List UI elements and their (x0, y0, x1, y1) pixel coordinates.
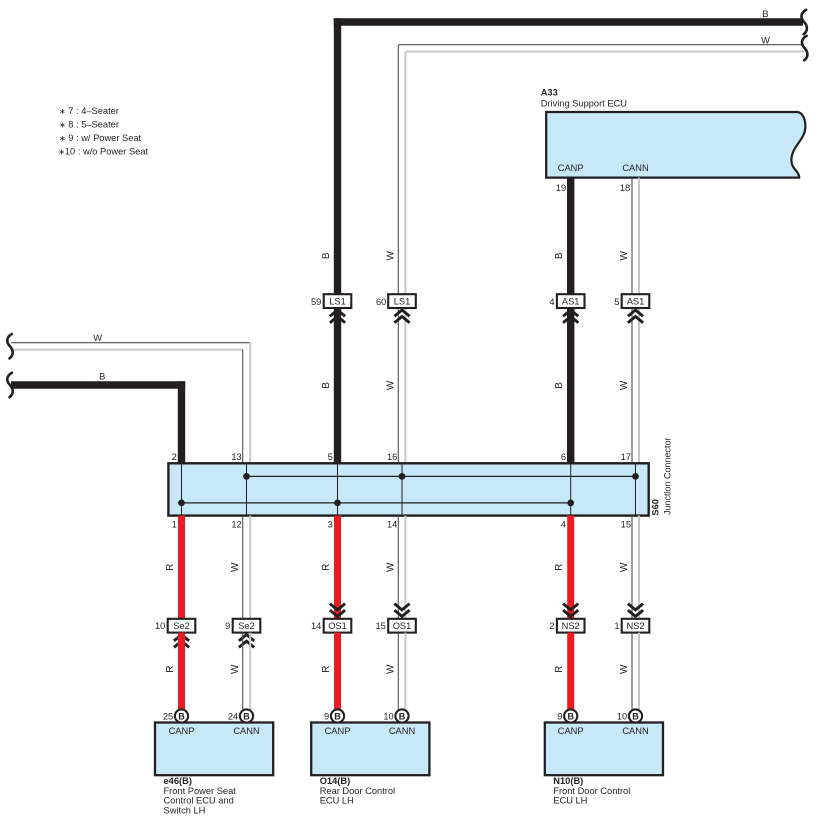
svg-text:3: 3 (328, 519, 333, 529)
svg-text:OS1: OS1 (393, 621, 412, 631)
svg-text:W: W (619, 562, 630, 572)
svg-text:10: 10 (383, 711, 393, 721)
svg-text:NS2: NS2 (562, 621, 580, 631)
svg-text:B: B (567, 711, 574, 721)
svg-text:CANP: CANP (558, 163, 584, 173)
svg-text:25: 25 (163, 711, 173, 721)
svg-text:Front Power Seat: Front Power Seat (164, 786, 237, 796)
svg-text:2: 2 (549, 621, 554, 631)
svg-text:ECU LH: ECU LH (320, 796, 354, 806)
svg-text:W: W (619, 251, 630, 261)
svg-text:Se2: Se2 (173, 621, 190, 631)
svg-text:W: W (619, 664, 630, 674)
svg-text:18: 18 (620, 183, 630, 193)
svg-text:59: 59 (311, 297, 321, 307)
svg-text:CANN: CANN (622, 163, 648, 173)
svg-text:e46(B): e46(B) (164, 776, 192, 786)
svg-text:16: 16 (387, 452, 397, 462)
svg-text:O14(B): O14(B) (320, 776, 350, 786)
svg-text:2: 2 (172, 452, 177, 462)
svg-text:10: 10 (155, 621, 165, 631)
svg-text:W: W (385, 562, 396, 572)
svg-text:Driving Support ECU: Driving Support ECU (541, 99, 627, 109)
svg-text:4: 4 (549, 297, 554, 307)
svg-text:∗ 7 : 4–Seater: ∗ 7 : 4–Seater (59, 106, 119, 116)
svg-text:A33: A33 (541, 88, 558, 98)
svg-text:W: W (385, 251, 396, 261)
svg-text:W: W (93, 333, 102, 343)
svg-text:CANP: CANP (169, 726, 195, 736)
svg-text:CANP: CANP (325, 726, 351, 736)
svg-text:15: 15 (375, 621, 385, 631)
svg-text:R: R (321, 564, 332, 571)
svg-text:14: 14 (387, 519, 397, 529)
svg-text:5: 5 (328, 452, 333, 462)
svg-text:R: R (321, 666, 332, 673)
svg-text:R: R (554, 564, 565, 571)
svg-text:W: W (230, 562, 241, 572)
svg-text:W: W (230, 664, 241, 674)
svg-text:LS1: LS1 (329, 297, 346, 307)
svg-text:Switch LH: Switch LH (164, 805, 206, 815)
svg-text:CANN: CANN (233, 726, 259, 736)
svg-text:B: B (399, 711, 406, 721)
svg-text:W: W (761, 35, 770, 45)
svg-text:∗ 9 : w/ Power Seat: ∗ 9 : w/ Power Seat (59, 133, 142, 143)
svg-text:Se2: Se2 (238, 621, 255, 631)
svg-text:∗10 : w/o Power Seat: ∗10 : w/o Power Seat (58, 146, 148, 156)
svg-text:9: 9 (225, 621, 230, 631)
svg-text:60: 60 (376, 297, 386, 307)
svg-text:B: B (554, 252, 565, 259)
svg-text:S60: S60 (650, 499, 660, 516)
svg-text:CANP: CANP (558, 726, 584, 736)
svg-text:9: 9 (324, 711, 329, 721)
svg-text:AS1: AS1 (562, 297, 580, 307)
svg-text:NS2: NS2 (626, 621, 644, 631)
svg-text:R: R (554, 666, 565, 673)
svg-text:B: B (334, 711, 341, 721)
svg-text:LS1: LS1 (394, 297, 411, 307)
svg-text:1: 1 (172, 519, 177, 529)
svg-text:B: B (178, 711, 185, 721)
svg-text:4: 4 (561, 519, 566, 529)
svg-text:∗ 8 : 5–Seater: ∗ 8 : 5–Seater (59, 119, 119, 129)
svg-text:10: 10 (617, 711, 627, 721)
svg-text:12: 12 (231, 519, 241, 529)
svg-text:AS1: AS1 (627, 297, 645, 307)
svg-text:5: 5 (614, 297, 619, 307)
svg-text:B: B (632, 711, 639, 721)
svg-text:Control ECU and: Control ECU and (164, 796, 234, 806)
svg-text:19: 19 (556, 183, 566, 193)
svg-text:R: R (165, 564, 176, 571)
svg-text:B: B (99, 372, 105, 382)
svg-text:Rear Door Control: Rear Door Control (320, 786, 395, 796)
svg-text:B: B (554, 382, 565, 389)
svg-text:B: B (321, 382, 332, 389)
svg-text:ECU LH: ECU LH (553, 796, 587, 806)
svg-text:Junction Connector: Junction Connector (663, 437, 673, 515)
svg-text:OS1: OS1 (328, 621, 347, 631)
svg-text:N10(B): N10(B) (553, 776, 583, 786)
svg-text:W: W (385, 380, 396, 390)
svg-text:6: 6 (561, 452, 566, 462)
svg-text:9: 9 (557, 711, 562, 721)
svg-text:Front Door Control: Front Door Control (553, 786, 630, 796)
svg-text:CANN: CANN (389, 726, 415, 736)
svg-text:14: 14 (311, 621, 321, 631)
svg-text:13: 13 (231, 452, 241, 462)
svg-text:24: 24 (228, 711, 238, 721)
svg-text:CANN: CANN (622, 726, 648, 736)
svg-text:1: 1 (614, 621, 619, 631)
svg-text:W: W (385, 664, 396, 674)
svg-text:15: 15 (621, 519, 631, 529)
svg-text:17: 17 (621, 452, 631, 462)
svg-text:W: W (619, 380, 630, 390)
svg-text:B: B (762, 9, 768, 19)
svg-text:B: B (243, 711, 250, 721)
svg-text:B: B (321, 252, 332, 259)
svg-text:R: R (165, 666, 176, 673)
